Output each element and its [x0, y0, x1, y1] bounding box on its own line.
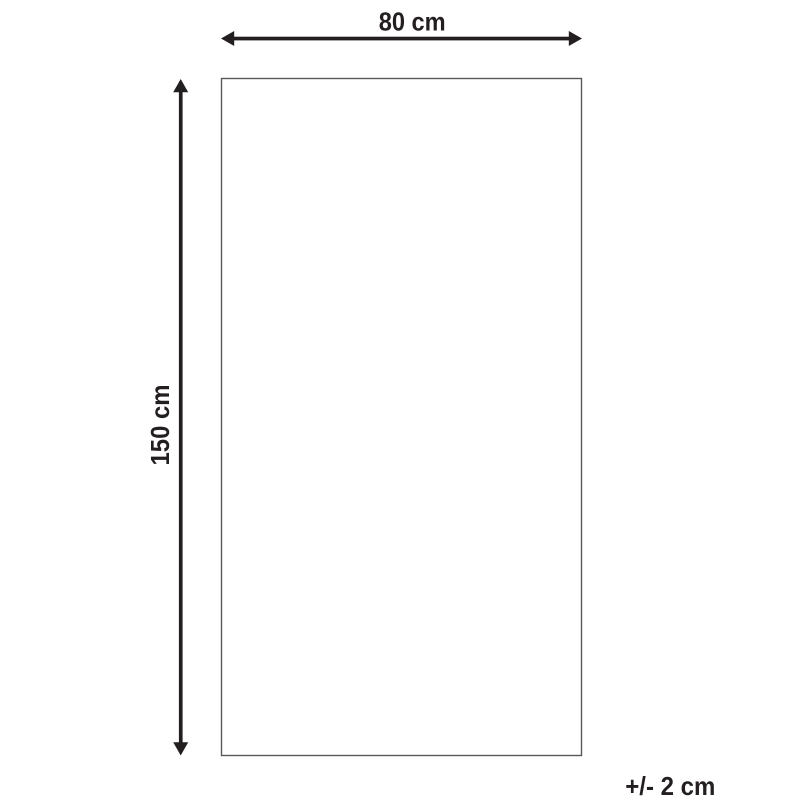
svg-text:150 cm: 150 cm	[145, 385, 175, 466]
svg-text:80 cm: 80 cm	[379, 6, 446, 36]
svg-text:+/- 2 cm: +/- 2 cm	[625, 771, 715, 800]
